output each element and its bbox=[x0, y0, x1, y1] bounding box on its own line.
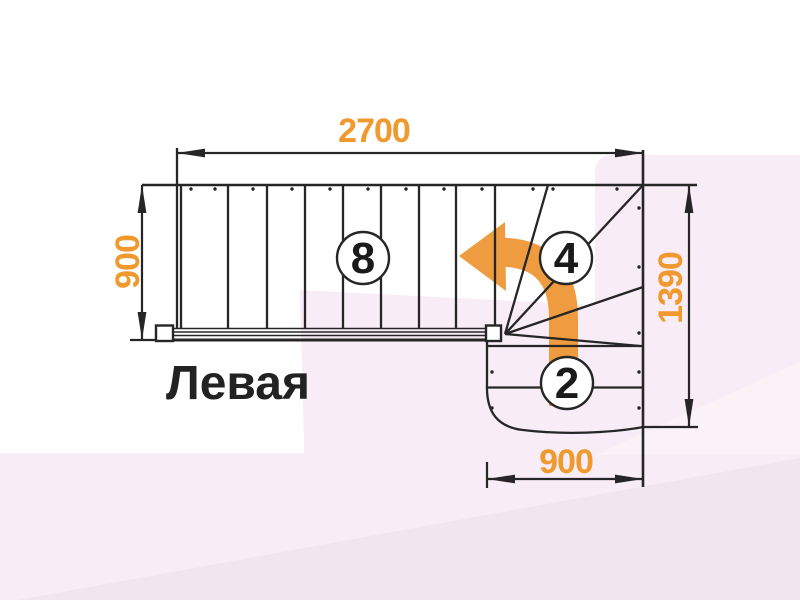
plan-title: Левая bbox=[166, 357, 310, 410]
step-count-label: 2 bbox=[555, 359, 579, 408]
dim-right-label: 1390 bbox=[652, 252, 690, 324]
dim-bottom-label: 900 bbox=[539, 443, 593, 481]
newel-post-center bbox=[486, 326, 501, 342]
step-count-label: 8 bbox=[351, 234, 375, 283]
newel-post-left bbox=[156, 326, 173, 342]
step-count-lower-flight: 2 bbox=[541, 357, 593, 409]
step-count-main-flight: 8 bbox=[337, 232, 389, 284]
dim-left-label: 900 bbox=[109, 235, 147, 289]
staircase-plan-diagram: 2700 900 1390 900 8 4 2 Левая bbox=[0, 0, 800, 600]
staircase-plan-page: 2700 900 1390 900 8 4 2 Левая bbox=[0, 0, 800, 600]
step-count-label: 4 bbox=[554, 234, 579, 283]
dim-top-label: 2700 bbox=[338, 112, 410, 150]
step-count-winder: 4 bbox=[540, 232, 592, 284]
